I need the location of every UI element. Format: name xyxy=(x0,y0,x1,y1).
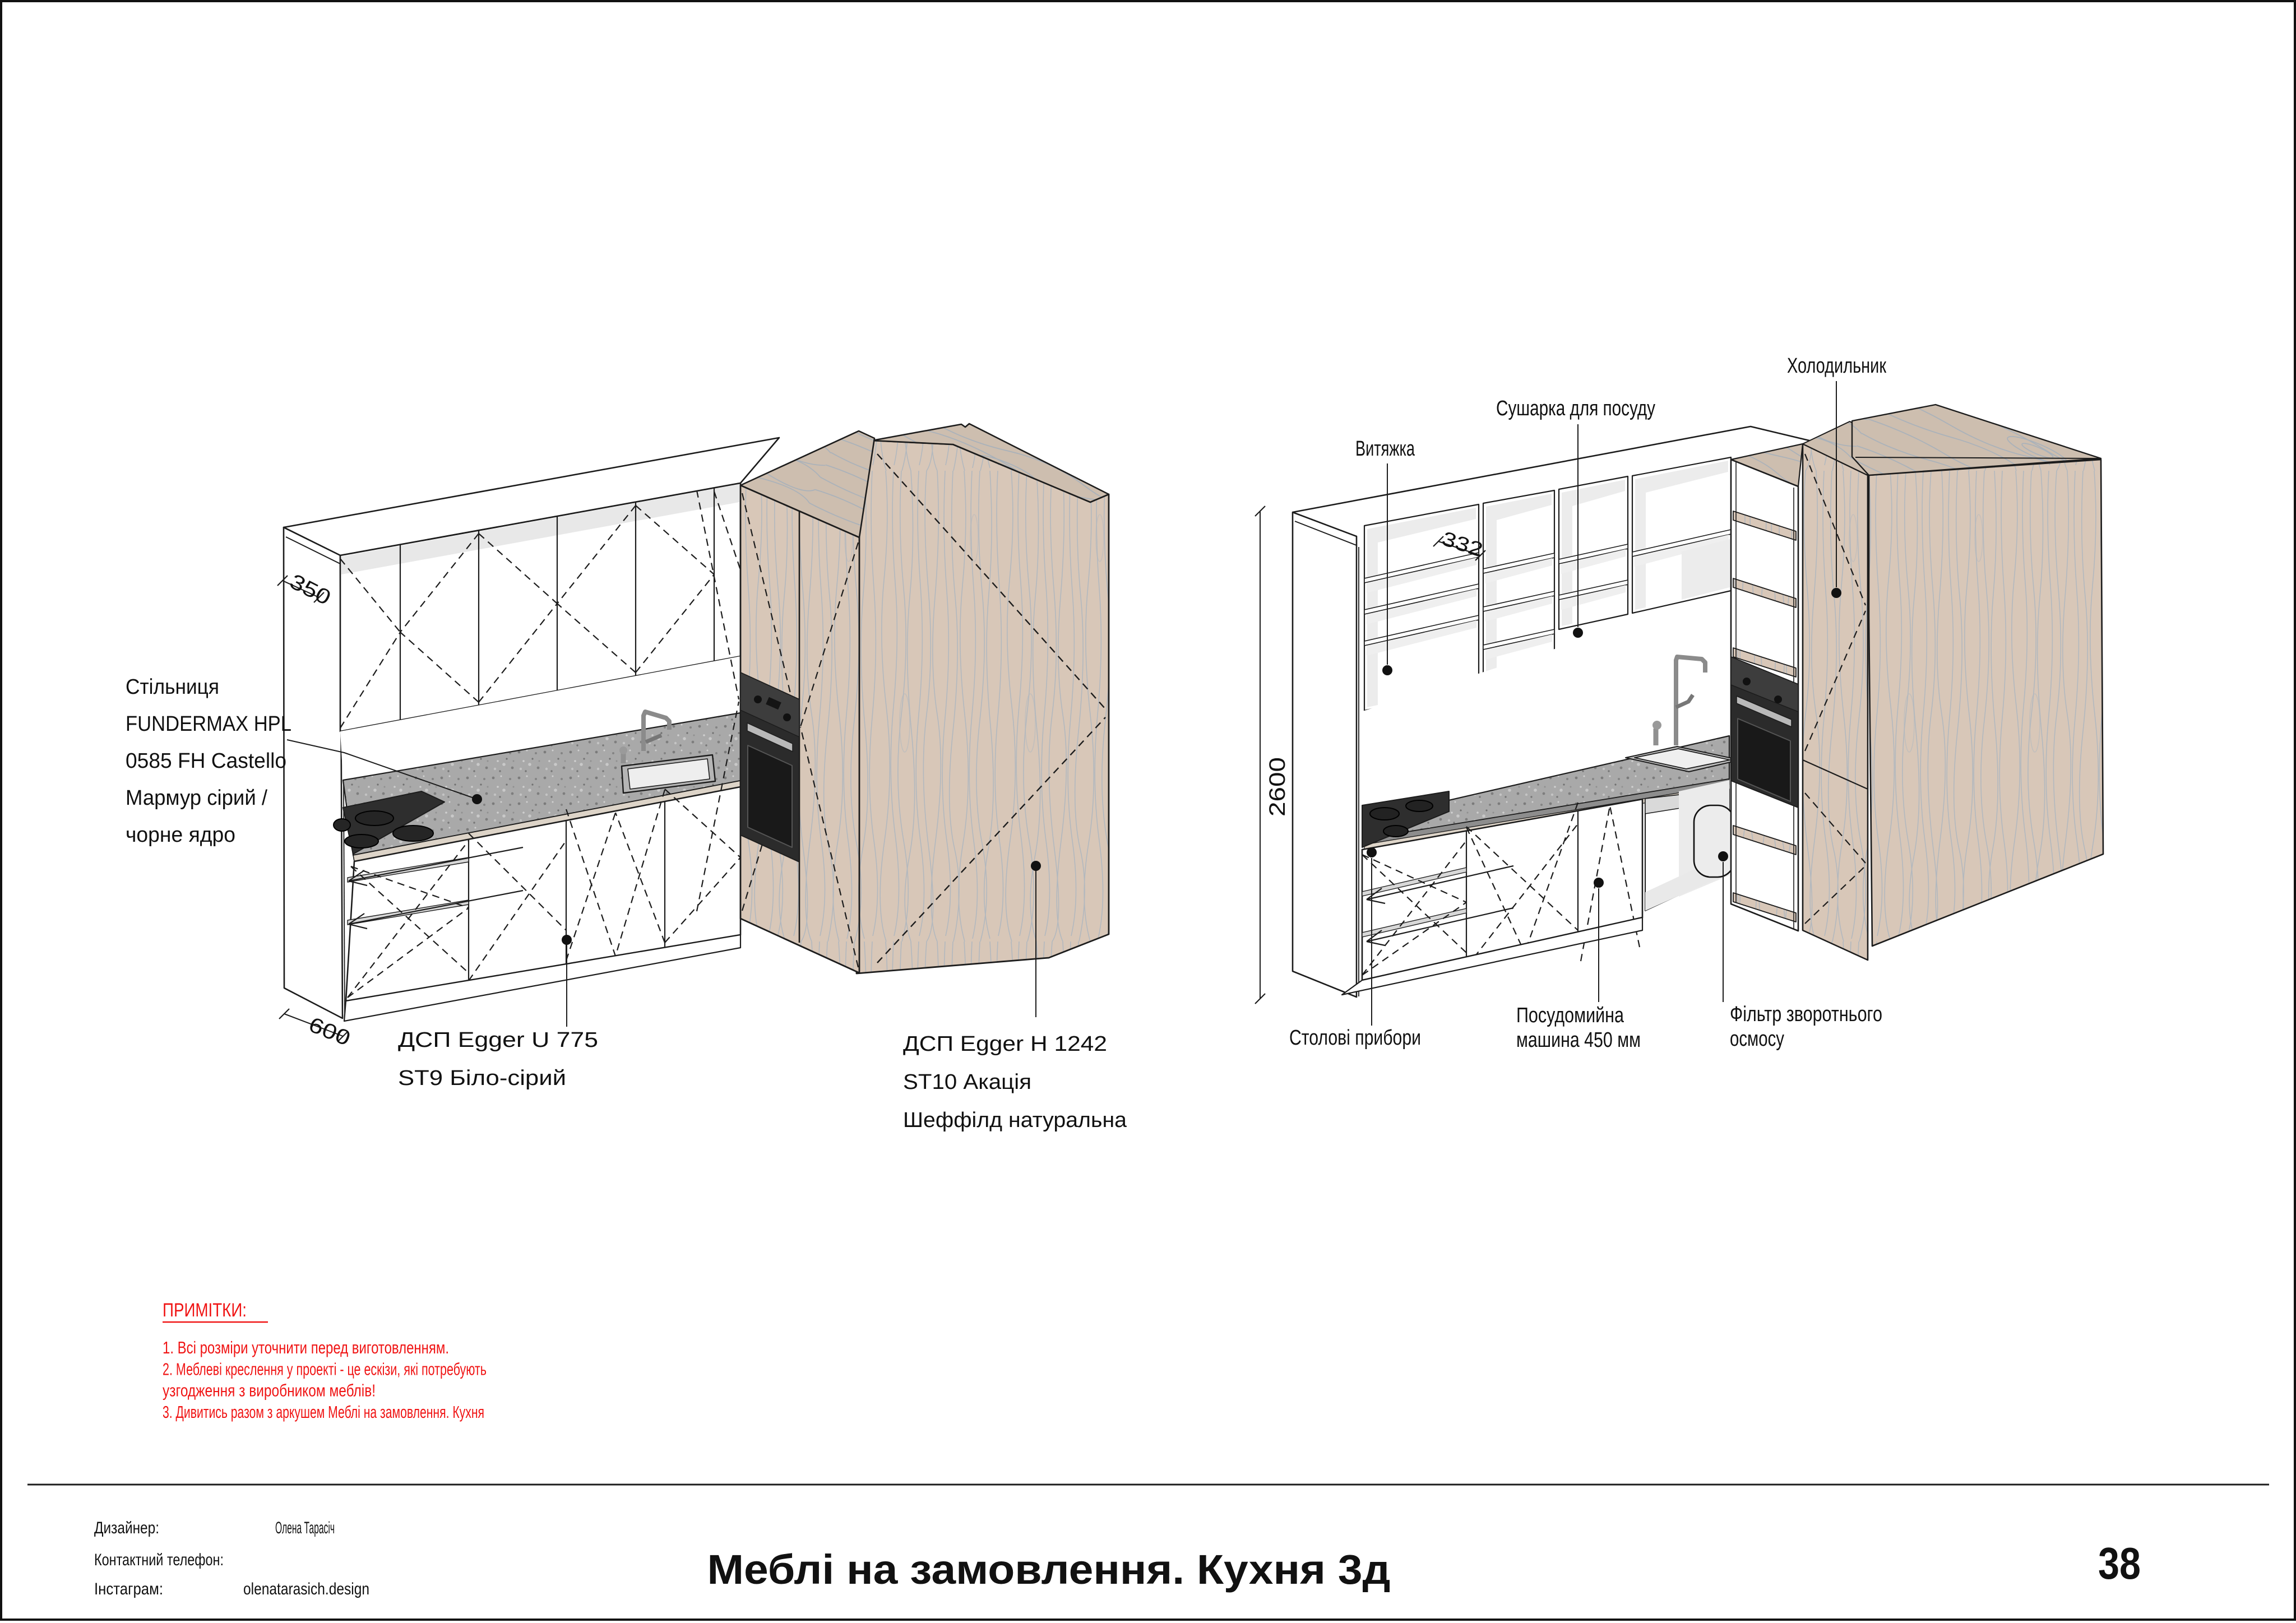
svg-text:Столові прибори: Столові прибори xyxy=(1289,1026,1421,1050)
svg-text:Контактний телефон:: Контактний телефон: xyxy=(94,1551,224,1569)
svg-text:0585 FH Castello: 0585 FH Castello xyxy=(126,749,286,773)
svg-text:Дизайнер:: Дизайнер: xyxy=(94,1519,159,1537)
svg-text:3. Дивитись разом з аркушем Ме: 3. Дивитись разом з аркушем Меблі на зам… xyxy=(163,1402,484,1422)
svg-text:38: 38 xyxy=(2098,1538,2141,1588)
svg-text:2600: 2600 xyxy=(1265,757,1290,817)
svg-text:узгодження з виробником меблів: узгодження з виробником меблів! xyxy=(163,1381,376,1401)
svg-text:Шеффілд натуральна: Шеффілд натуральна xyxy=(903,1109,1127,1132)
svg-text:ДСП Egger U 775: ДСП Egger U 775 xyxy=(398,1028,598,1052)
svg-text:Фільтр зворотнього: Фільтр зворотнього xyxy=(1730,1003,1882,1026)
svg-text:ST9 Біло-сірий: ST9 Біло-сірий xyxy=(398,1066,566,1090)
svg-text:Посудомийна: Посудомийна xyxy=(1516,1004,1624,1027)
svg-text:2. Меблеві креслення у проекті: 2. Меблеві креслення у проекті - це ескі… xyxy=(163,1359,487,1379)
svg-text:olenatarasich.design: olenatarasich.design xyxy=(243,1580,369,1598)
svg-text:машина 450 мм: машина 450 мм xyxy=(1516,1028,1641,1052)
svg-text:FUNDERMAX HPL: FUNDERMAX HPL xyxy=(126,712,291,736)
svg-text:ST10 Акація: ST10 Акація xyxy=(903,1070,1031,1094)
svg-text:1. Всі розміри уточнити перед: 1. Всі розміри уточнити перед виготовлен… xyxy=(163,1338,449,1357)
svg-text:Меблі на замовлення. Кухня 3д: Меблі на замовлення. Кухня 3д xyxy=(707,1546,1391,1593)
svg-text:Мармур сірий /: Мармур сірий / xyxy=(126,786,267,810)
svg-text:чорне ядро: чорне ядро xyxy=(126,823,235,847)
svg-text:Сушарка для посуду: Сушарка для посуду xyxy=(1496,397,1655,420)
svg-text:осмосу: осмосу xyxy=(1730,1027,1784,1051)
svg-text:Інстаграм:: Інстаграм: xyxy=(94,1580,163,1598)
svg-text:Витяжка: Витяжка xyxy=(1355,437,1415,461)
svg-text:Олена Тарасіч: Олена Тарасіч xyxy=(275,1519,335,1537)
svg-text:Стільниця: Стільниця xyxy=(126,675,219,699)
svg-text:Холодильник: Холодильник xyxy=(1787,354,1886,378)
svg-text:ДСП Egger H 1242: ДСП Egger H 1242 xyxy=(903,1032,1107,1056)
svg-text:ПРИМІТКИ:: ПРИМІТКИ: xyxy=(163,1300,247,1321)
